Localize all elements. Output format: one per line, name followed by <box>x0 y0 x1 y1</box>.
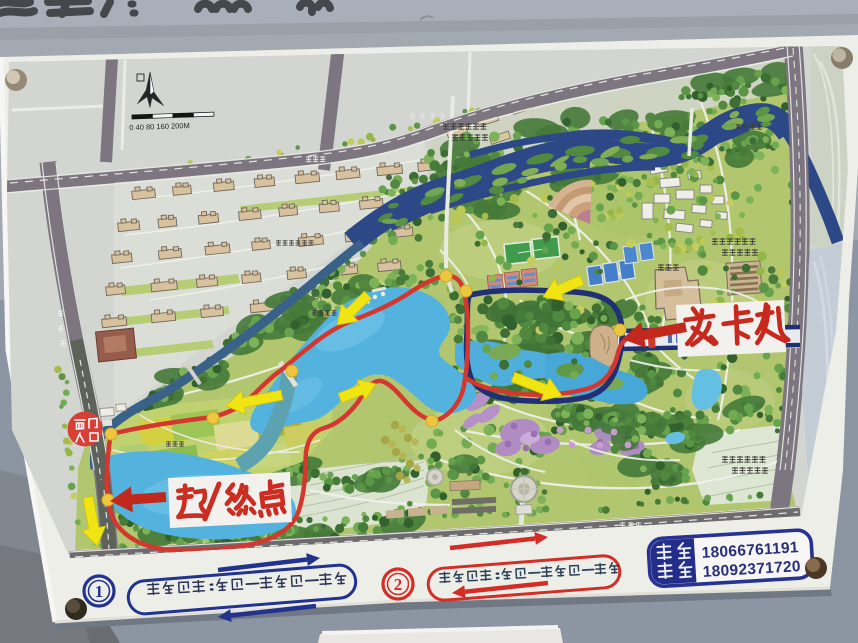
svg-text:1: 1 <box>95 582 104 601</box>
svg-text:2: 2 <box>394 575 403 594</box>
